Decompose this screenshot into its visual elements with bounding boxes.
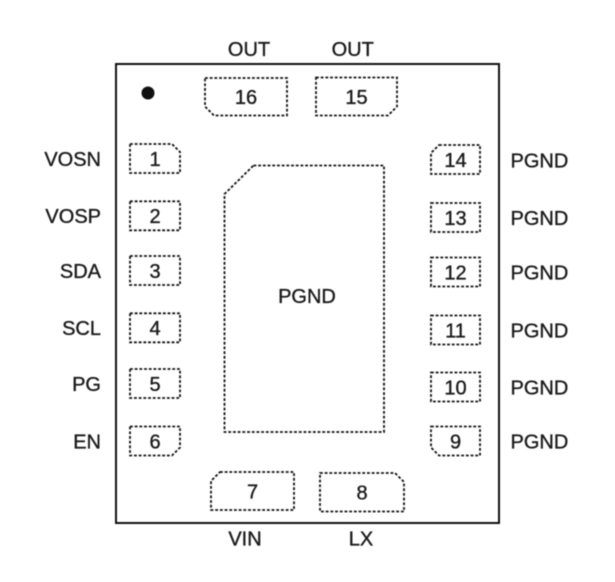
svg-text:VOSN: VOSN [44,149,101,171]
svg-text:OUT: OUT [332,39,374,61]
svg-text:PGND: PGND [511,431,569,453]
svg-text:OUT: OUT [228,39,270,61]
svg-text:PGND: PGND [278,286,336,308]
svg-text:4: 4 [149,318,160,340]
svg-text:16: 16 [235,87,257,109]
svg-text:6: 6 [149,431,160,453]
svg-text:10: 10 [444,377,466,399]
svg-text:PGND: PGND [511,150,569,172]
svg-text:9: 9 [450,431,461,453]
svg-text:VOSP: VOSP [45,206,101,228]
svg-text:PGND: PGND [511,377,569,399]
svg-text:EN: EN [73,431,101,453]
svg-text:PGND: PGND [511,262,569,284]
svg-text:2: 2 [149,206,160,228]
svg-text:PGND: PGND [511,208,569,230]
svg-text:SCL: SCL [62,318,101,340]
svg-text:VIN: VIN [228,529,261,551]
svg-text:14: 14 [444,150,466,172]
svg-text:3: 3 [149,261,160,283]
svg-text:7: 7 [247,481,258,503]
svg-text:11: 11 [445,320,466,342]
svg-text:12: 12 [444,262,466,284]
svg-text:5: 5 [149,374,160,396]
svg-text:1: 1 [149,149,160,171]
svg-text:LX: LX [349,529,373,551]
svg-text:SDA: SDA [60,261,102,283]
svg-text:PG: PG [72,374,101,396]
svg-text:13: 13 [444,208,466,230]
svg-text:15: 15 [345,87,367,109]
svg-text:PGND: PGND [511,320,569,342]
svg-text:8: 8 [356,483,367,505]
